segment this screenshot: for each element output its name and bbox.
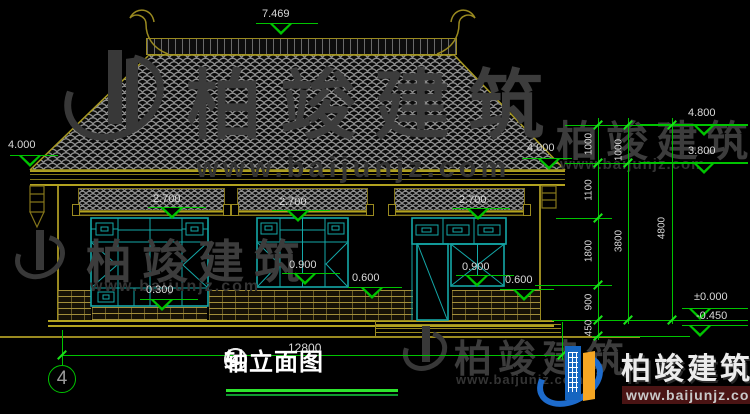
elevation-line xyxy=(140,299,198,300)
dimension-value: 4800 xyxy=(657,217,668,239)
dimension-value: 1000 xyxy=(584,133,595,155)
elevation-line xyxy=(282,273,340,274)
elevation-triangle xyxy=(161,208,183,219)
dimension-value: 1800 xyxy=(584,240,595,262)
elevation-label: -0.450 xyxy=(696,310,727,322)
logo-name: 柏竣建筑 xyxy=(621,344,750,388)
elevation-label: 7.469 xyxy=(262,8,290,20)
elevation-line xyxy=(452,208,510,209)
dimension-chain-line xyxy=(628,118,629,324)
logo-building-icon xyxy=(535,344,621,410)
elevation-line xyxy=(272,210,330,211)
elevation-triangle xyxy=(270,24,292,35)
dimension-value: 1000 xyxy=(614,139,625,161)
elevation-triangle xyxy=(19,156,41,167)
dimension-ext-line xyxy=(565,163,748,164)
elevation-triangle xyxy=(467,209,489,220)
elevation-line xyxy=(682,308,748,309)
dimension-value: 3800 xyxy=(614,230,625,252)
elevation-line xyxy=(10,155,58,156)
elevation-label: 2.700 xyxy=(279,196,307,208)
dimension-value: 450 xyxy=(584,320,595,337)
logo-url: www.baijunjz.com xyxy=(622,386,750,404)
elevation-label: ±0.000 xyxy=(694,291,728,303)
dimension-ext-line xyxy=(592,336,690,337)
dimension-ext-line xyxy=(565,125,748,126)
elevation-triangle xyxy=(693,163,715,174)
elevation-triangle xyxy=(513,290,535,301)
elevation-line xyxy=(500,289,554,290)
dimension-value: 900 xyxy=(584,294,595,311)
elevation-label: 0.300 xyxy=(146,284,174,296)
dimension-chain-line xyxy=(672,118,673,324)
elevation-triangle xyxy=(287,211,309,222)
elevation-triangle xyxy=(693,125,715,136)
dimension-chain-line xyxy=(62,330,63,365)
elevation-label: 0.900 xyxy=(462,261,490,273)
elevation-line xyxy=(682,325,748,326)
dimension-ext-line xyxy=(556,218,612,219)
title-underline2 xyxy=(226,394,398,396)
axis-grid-bubble: 4 xyxy=(48,365,76,393)
elevation-line xyxy=(148,207,206,208)
dimension-value: 1100 xyxy=(584,179,595,201)
dimension-chain-line xyxy=(598,118,599,340)
title-underline xyxy=(226,389,398,392)
elevation-line xyxy=(348,287,402,288)
elevation-triangle xyxy=(151,300,173,311)
elevation-triangle xyxy=(689,326,711,337)
brand-logo: 柏竣建筑 www.baijunjz.com xyxy=(535,342,750,412)
title-text: 轴立面图 xyxy=(224,342,324,377)
cad-elevation-drawing: 7.4694.0004.0004.8003.8002.7002.7002.700… xyxy=(0,0,750,414)
elevation-label: 4.000 xyxy=(527,142,555,154)
elevation-label: 2.700 xyxy=(459,194,487,206)
elevation-label: 3.800 xyxy=(688,145,716,157)
elevation-label: 0.600 xyxy=(352,272,380,284)
elevation-triangle xyxy=(294,274,316,285)
elevation-label: 2.700 xyxy=(153,193,181,205)
elevation-label: 4.800 xyxy=(688,107,716,119)
elevation-label: 0.900 xyxy=(289,259,317,271)
elevation-triangle xyxy=(538,159,560,170)
elevation-label: 0.600 xyxy=(505,274,533,286)
elevation-label: 4.000 xyxy=(8,139,36,151)
dimension-ext-line xyxy=(535,285,612,286)
elevation-line xyxy=(256,23,318,24)
elevation-triangle xyxy=(466,276,488,287)
elevation-line xyxy=(522,158,572,159)
elevation-triangle xyxy=(361,288,383,299)
